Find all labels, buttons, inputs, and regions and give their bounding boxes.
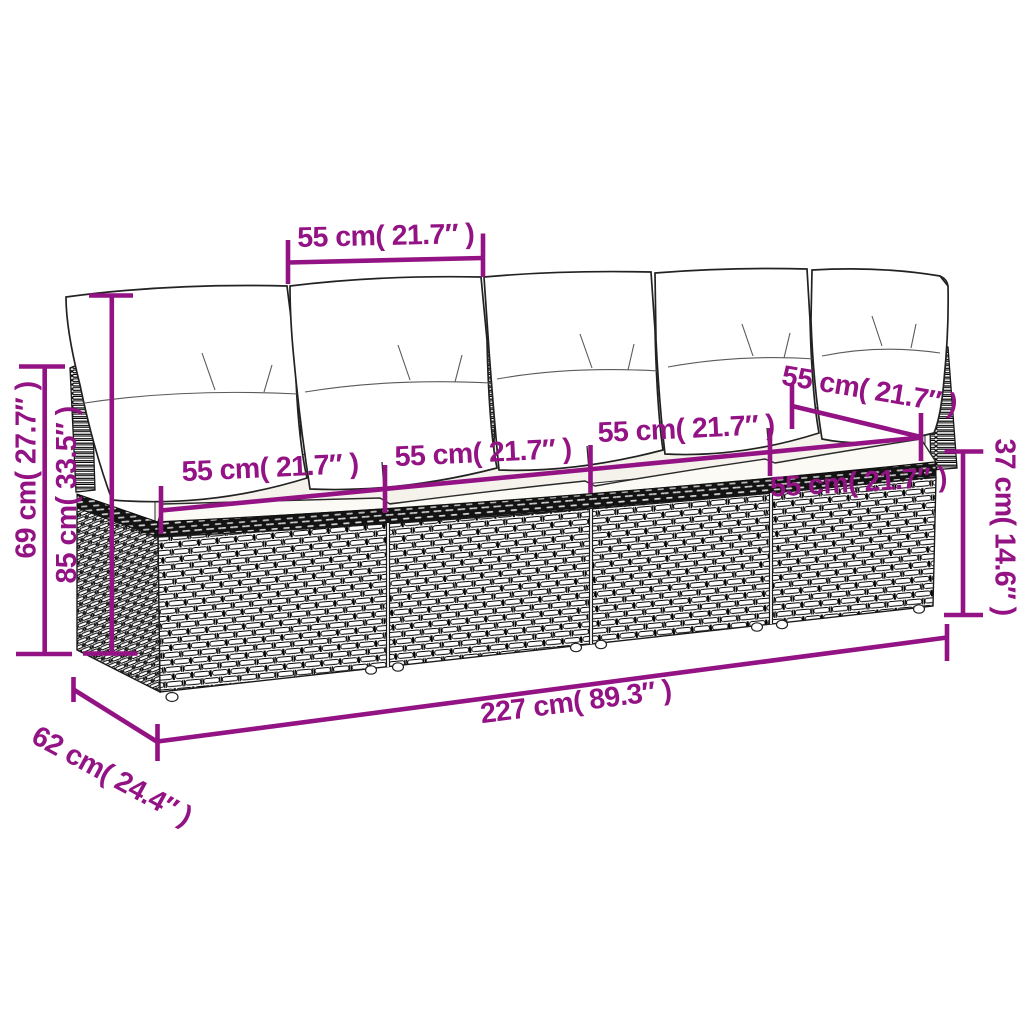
svg-text:55 cm( 21.7″ ): 55 cm( 21.7″ ) [297, 218, 475, 254]
svg-text:85 cm( 33.5″ ): 85 cm( 33.5″ ) [51, 406, 83, 583]
svg-text:69 cm( 27.7″ ): 69 cm( 27.7″ ) [11, 381, 43, 558]
svg-text:37 cm( 14.6″ ): 37 cm( 14.6″ ) [989, 438, 1021, 615]
